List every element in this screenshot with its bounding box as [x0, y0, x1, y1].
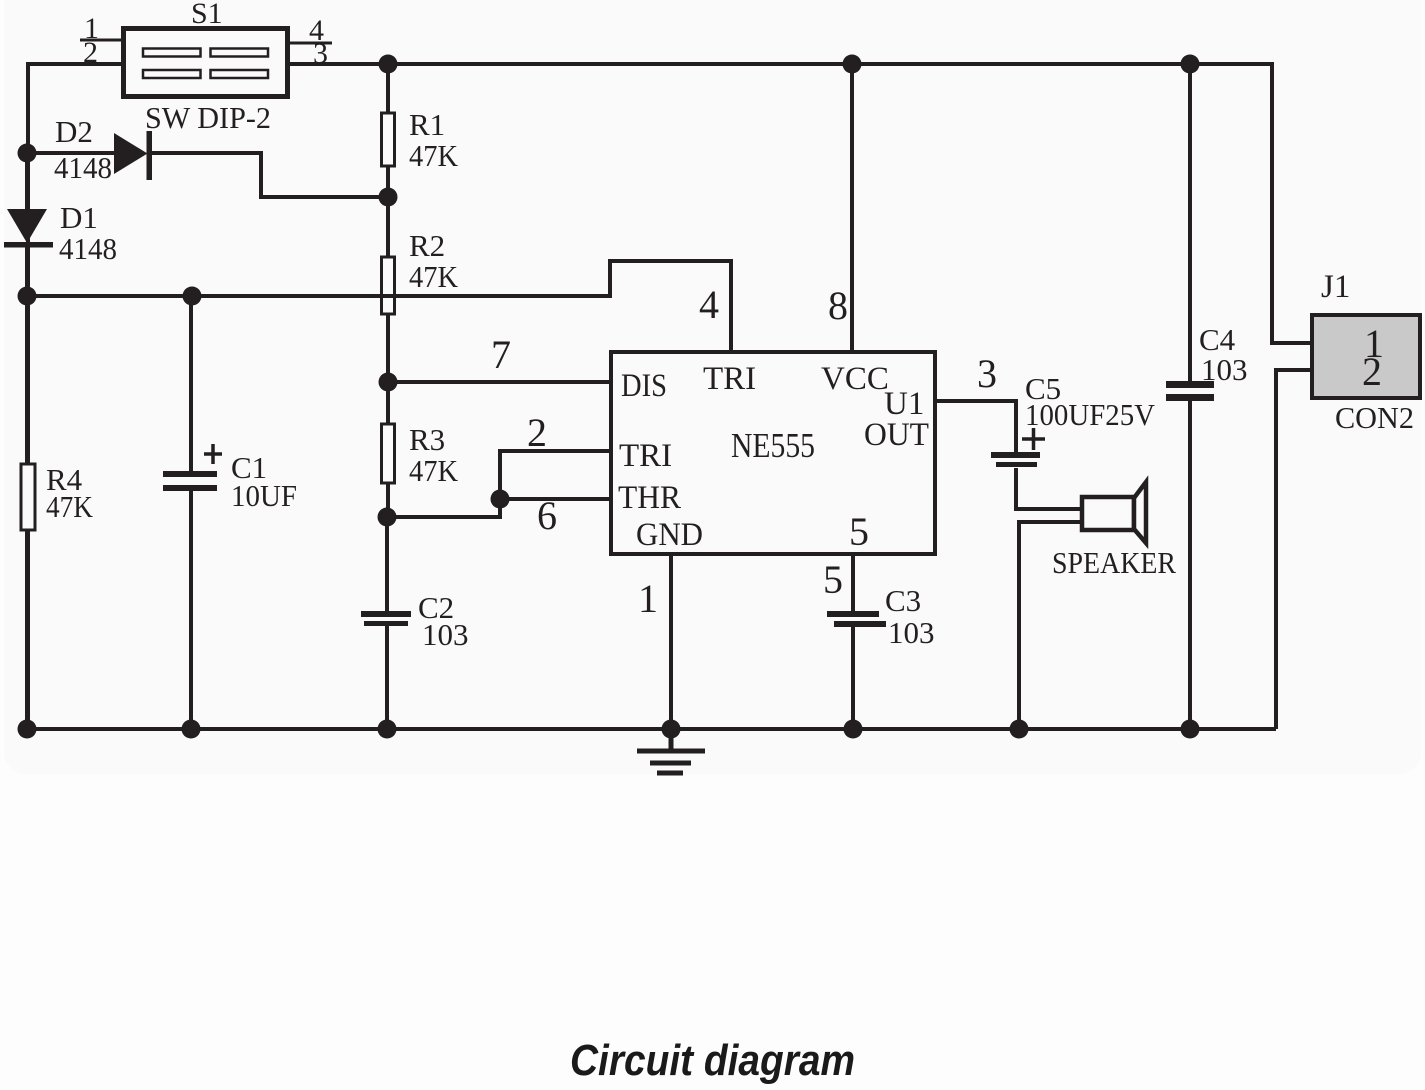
- svg-text:7: 7: [491, 332, 511, 377]
- svg-text:8: 8: [828, 283, 848, 328]
- svg-text:DIS: DIS: [621, 368, 667, 404]
- svg-text:NE555: NE555: [731, 426, 815, 465]
- svg-text:TRI: TRI: [703, 361, 756, 397]
- svg-text:1: 1: [638, 576, 658, 621]
- svg-text:GND: GND: [636, 517, 703, 553]
- svg-text:10UF: 10UF: [231, 478, 297, 513]
- svg-text:100UF25V: 100UF25V: [1025, 397, 1156, 432]
- svg-text:SW DIP-2: SW DIP-2: [145, 100, 271, 135]
- svg-text:C3: C3: [885, 583, 921, 618]
- svg-text:2: 2: [527, 410, 547, 455]
- svg-text:6: 6: [537, 493, 557, 538]
- svg-text:4148: 4148: [59, 231, 117, 266]
- svg-text:3: 3: [977, 351, 997, 396]
- svg-text:47K: 47K: [409, 138, 459, 173]
- svg-text:SPEAKER: SPEAKER: [1052, 545, 1176, 580]
- svg-text:4148: 4148: [54, 150, 112, 185]
- svg-text:103: 103: [1201, 352, 1248, 387]
- svg-text:R1: R1: [409, 107, 445, 142]
- svg-text:D2: D2: [55, 114, 93, 149]
- svg-text:2: 2: [1362, 349, 1382, 394]
- svg-text:2: 2: [83, 36, 98, 69]
- svg-text:103: 103: [888, 615, 935, 650]
- svg-text:OUT: OUT: [864, 417, 929, 453]
- svg-text:103: 103: [422, 617, 469, 652]
- svg-text:VCC: VCC: [821, 361, 889, 397]
- svg-text:3: 3: [313, 37, 328, 70]
- svg-text:S1: S1: [191, 0, 223, 30]
- svg-text:5: 5: [849, 509, 869, 554]
- svg-text:47K: 47K: [409, 453, 459, 488]
- svg-text:CON2: CON2: [1335, 400, 1414, 435]
- svg-text:R2: R2: [409, 228, 445, 263]
- svg-text:J1: J1: [1321, 269, 1350, 305]
- svg-text:47K: 47K: [409, 259, 459, 294]
- svg-text:5: 5: [823, 557, 843, 602]
- svg-text:D1: D1: [60, 200, 98, 235]
- svg-text:47K: 47K: [46, 489, 94, 524]
- svg-text:4: 4: [699, 282, 719, 327]
- svg-text:THR: THR: [618, 480, 681, 516]
- svg-text:TRI: TRI: [619, 438, 672, 474]
- svg-text:R3: R3: [409, 422, 445, 457]
- svg-text:Circuit diagram: Circuit diagram: [570, 1036, 855, 1085]
